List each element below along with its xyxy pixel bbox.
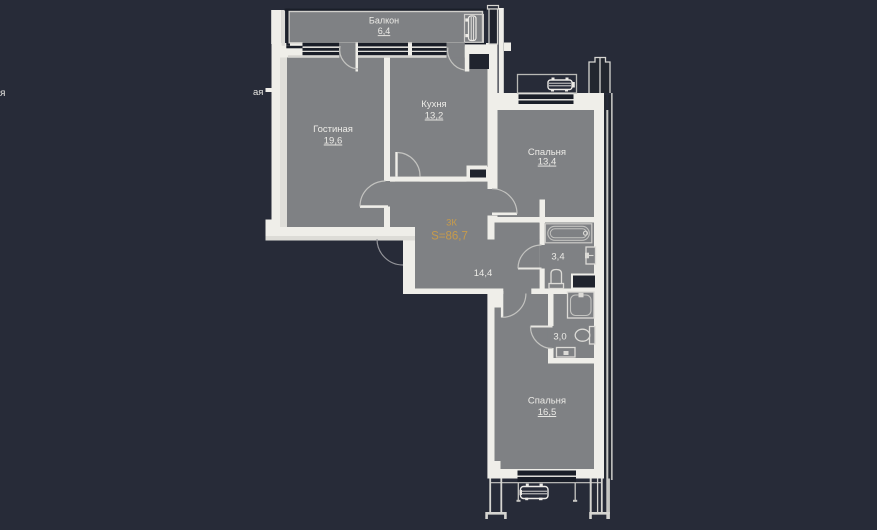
svg-text:6,4: 6,4 xyxy=(378,26,391,36)
svg-text:14,4: 14,4 xyxy=(474,268,493,279)
svg-text:Кухня: Кухня xyxy=(421,99,446,110)
svg-text:3К: 3К xyxy=(446,218,457,229)
svg-text:16,5: 16,5 xyxy=(538,407,557,418)
svg-text:13,2: 13,2 xyxy=(425,111,444,122)
svg-text:3,0: 3,0 xyxy=(553,332,566,343)
svg-text:S=86,7: S=86,7 xyxy=(431,231,468,243)
svg-text:19,6: 19,6 xyxy=(324,136,343,147)
svg-text:Балкон: Балкон xyxy=(369,16,399,26)
svg-text:Гостиная: Гостиная xyxy=(313,124,353,135)
svg-text:3,4: 3,4 xyxy=(551,252,564,263)
svg-text:ая: ая xyxy=(253,87,263,98)
svg-text:я: я xyxy=(0,88,5,99)
svg-text:13,4: 13,4 xyxy=(538,157,557,168)
svg-text:Спальня: Спальня xyxy=(528,396,566,407)
